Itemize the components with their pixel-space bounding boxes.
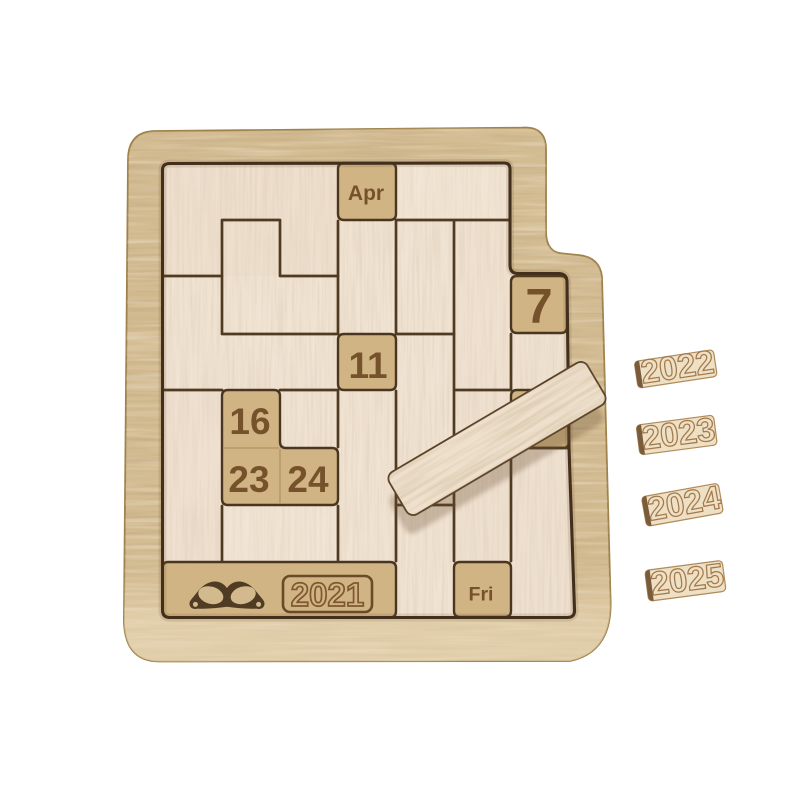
svg-text:24: 24 [287,459,329,500]
svg-text:11: 11 [348,345,387,386]
svg-text:16: 16 [229,401,270,442]
svg-text:Apr: Apr [348,182,384,205]
svg-text:Fri: Fri [469,584,494,606]
svg-text:23: 23 [228,459,269,500]
svg-text:2021: 2021 [291,576,364,613]
svg-text:7: 7 [525,280,552,334]
